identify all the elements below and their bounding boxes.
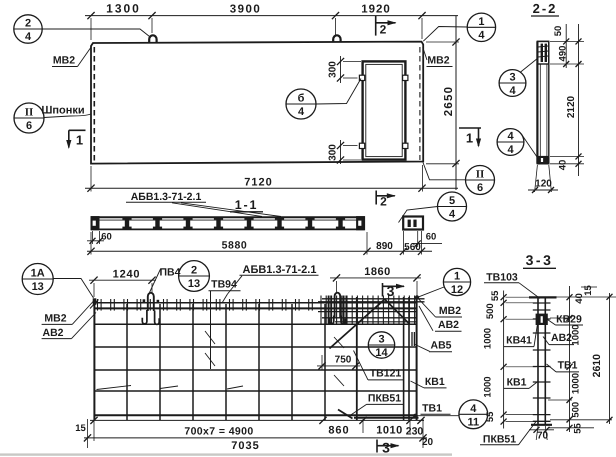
svg-text:АБВ1.3-71-2.1: АБВ1.3-71-2.1 <box>243 264 317 276</box>
svg-text:3900: 3900 <box>230 4 262 16</box>
svg-text:4: 4 <box>449 209 456 221</box>
svg-text:1240: 1240 <box>113 269 141 281</box>
svg-text:5: 5 <box>449 195 455 207</box>
svg-text:2650: 2650 <box>443 86 455 116</box>
svg-text:3: 3 <box>378 334 384 346</box>
svg-text:1: 1 <box>466 131 473 146</box>
svg-text:20: 20 <box>422 437 434 448</box>
svg-text:1300: 1300 <box>106 2 141 16</box>
svg-text:2610: 2610 <box>591 354 603 378</box>
svg-text:1920: 1920 <box>361 4 391 16</box>
svg-text:230: 230 <box>406 426 424 438</box>
svg-text:1000: 1000 <box>571 324 582 345</box>
svg-text:ПКВ51: ПКВ51 <box>483 434 516 446</box>
svg-text:1-1: 1-1 <box>235 198 258 212</box>
svg-text:1860: 1860 <box>364 266 390 278</box>
svg-text:55: 55 <box>490 290 501 301</box>
svg-text:3: 3 <box>509 72 515 84</box>
svg-text:50: 50 <box>553 26 564 37</box>
svg-text:15: 15 <box>75 423 86 434</box>
svg-text:13: 13 <box>188 278 200 290</box>
svg-text:1000: 1000 <box>483 328 494 349</box>
svg-text:4: 4 <box>507 144 514 156</box>
svg-text:МВ2: МВ2 <box>53 55 75 67</box>
svg-text:490: 490 <box>558 46 569 62</box>
svg-text:700х7 = 4900: 700х7 = 4900 <box>184 426 253 438</box>
svg-text:11: 11 <box>467 416 479 428</box>
svg-text:МВ2: МВ2 <box>44 313 66 325</box>
svg-text:1: 1 <box>478 16 484 28</box>
svg-text:3: 3 <box>387 283 395 299</box>
svg-text:70: 70 <box>537 431 549 442</box>
svg-text:1000: 1000 <box>571 373 582 394</box>
svg-text:300: 300 <box>328 61 339 78</box>
svg-text:2: 2 <box>380 195 387 209</box>
svg-text:МВ2: МВ2 <box>427 55 449 67</box>
svg-text:1000: 1000 <box>483 376 494 397</box>
svg-text:КВ29: КВ29 <box>556 314 582 326</box>
svg-text:750: 750 <box>335 355 352 366</box>
svg-text:55: 55 <box>573 423 584 434</box>
svg-text:ПВ4: ПВ4 <box>160 267 181 279</box>
svg-text:2: 2 <box>25 18 31 30</box>
svg-text:2-2: 2-2 <box>533 1 558 16</box>
svg-text:4: 4 <box>509 85 516 97</box>
svg-text:АБВ1.3-71-2.1: АБВ1.3-71-2.1 <box>131 191 202 203</box>
svg-text:ТВ103: ТВ103 <box>486 272 518 284</box>
svg-text:АВ2: АВ2 <box>438 319 459 331</box>
svg-text:2120: 2120 <box>566 95 577 118</box>
svg-text:Шпонки: Шпонки <box>41 105 84 117</box>
svg-text:6: 6 <box>477 182 483 194</box>
svg-text:55: 55 <box>485 411 496 422</box>
svg-text:4: 4 <box>478 29 485 41</box>
svg-text:2: 2 <box>380 23 387 37</box>
svg-text:12: 12 <box>451 284 463 296</box>
svg-text:14: 14 <box>375 347 388 359</box>
svg-text:13: 13 <box>32 281 44 293</box>
svg-text:АВ2: АВ2 <box>551 332 572 344</box>
svg-text:АВ5: АВ5 <box>430 340 451 352</box>
svg-text:АВ2: АВ2 <box>42 327 63 339</box>
svg-text:3-3: 3-3 <box>526 252 554 268</box>
svg-text:б: б <box>298 93 305 105</box>
svg-text:1А: 1А <box>31 268 45 280</box>
svg-text:ТВ1: ТВ1 <box>422 402 442 414</box>
svg-text:890: 890 <box>376 241 393 252</box>
svg-text:II: II <box>25 107 34 119</box>
svg-text:300: 300 <box>328 144 339 161</box>
svg-text:7035: 7035 <box>231 440 259 452</box>
svg-text:500: 500 <box>571 402 582 418</box>
svg-text:6: 6 <box>26 120 32 132</box>
svg-text:1010: 1010 <box>376 425 402 437</box>
svg-text:1: 1 <box>76 133 83 148</box>
svg-text:II: II <box>476 169 485 181</box>
svg-text:3: 3 <box>382 440 390 456</box>
svg-text:500: 500 <box>485 303 496 319</box>
svg-text:4: 4 <box>470 403 477 415</box>
svg-text:60: 60 <box>426 232 437 243</box>
svg-text:4: 4 <box>298 106 305 118</box>
svg-text:2: 2 <box>191 265 197 277</box>
svg-text:40: 40 <box>574 293 585 304</box>
svg-text:7120: 7120 <box>244 177 272 189</box>
svg-text:КВ1: КВ1 <box>507 377 527 389</box>
svg-text:МВ2: МВ2 <box>439 305 461 317</box>
svg-text:4: 4 <box>25 31 32 43</box>
svg-text:40: 40 <box>558 160 569 171</box>
svg-text:860: 860 <box>328 425 349 437</box>
svg-text:4: 4 <box>507 131 514 143</box>
svg-text:120: 120 <box>535 179 552 190</box>
svg-text:ПКВ51: ПКВ51 <box>368 392 401 404</box>
svg-text:КВ41: КВ41 <box>506 334 532 346</box>
svg-text:ТВ1: ТВ1 <box>558 359 578 371</box>
svg-text:5880: 5880 <box>222 240 248 252</box>
svg-text:КВ1: КВ1 <box>425 376 445 388</box>
svg-text:1: 1 <box>454 271 460 283</box>
svg-text:ТВ121: ТВ121 <box>370 368 402 380</box>
svg-text:ТВ94: ТВ94 <box>211 279 237 291</box>
